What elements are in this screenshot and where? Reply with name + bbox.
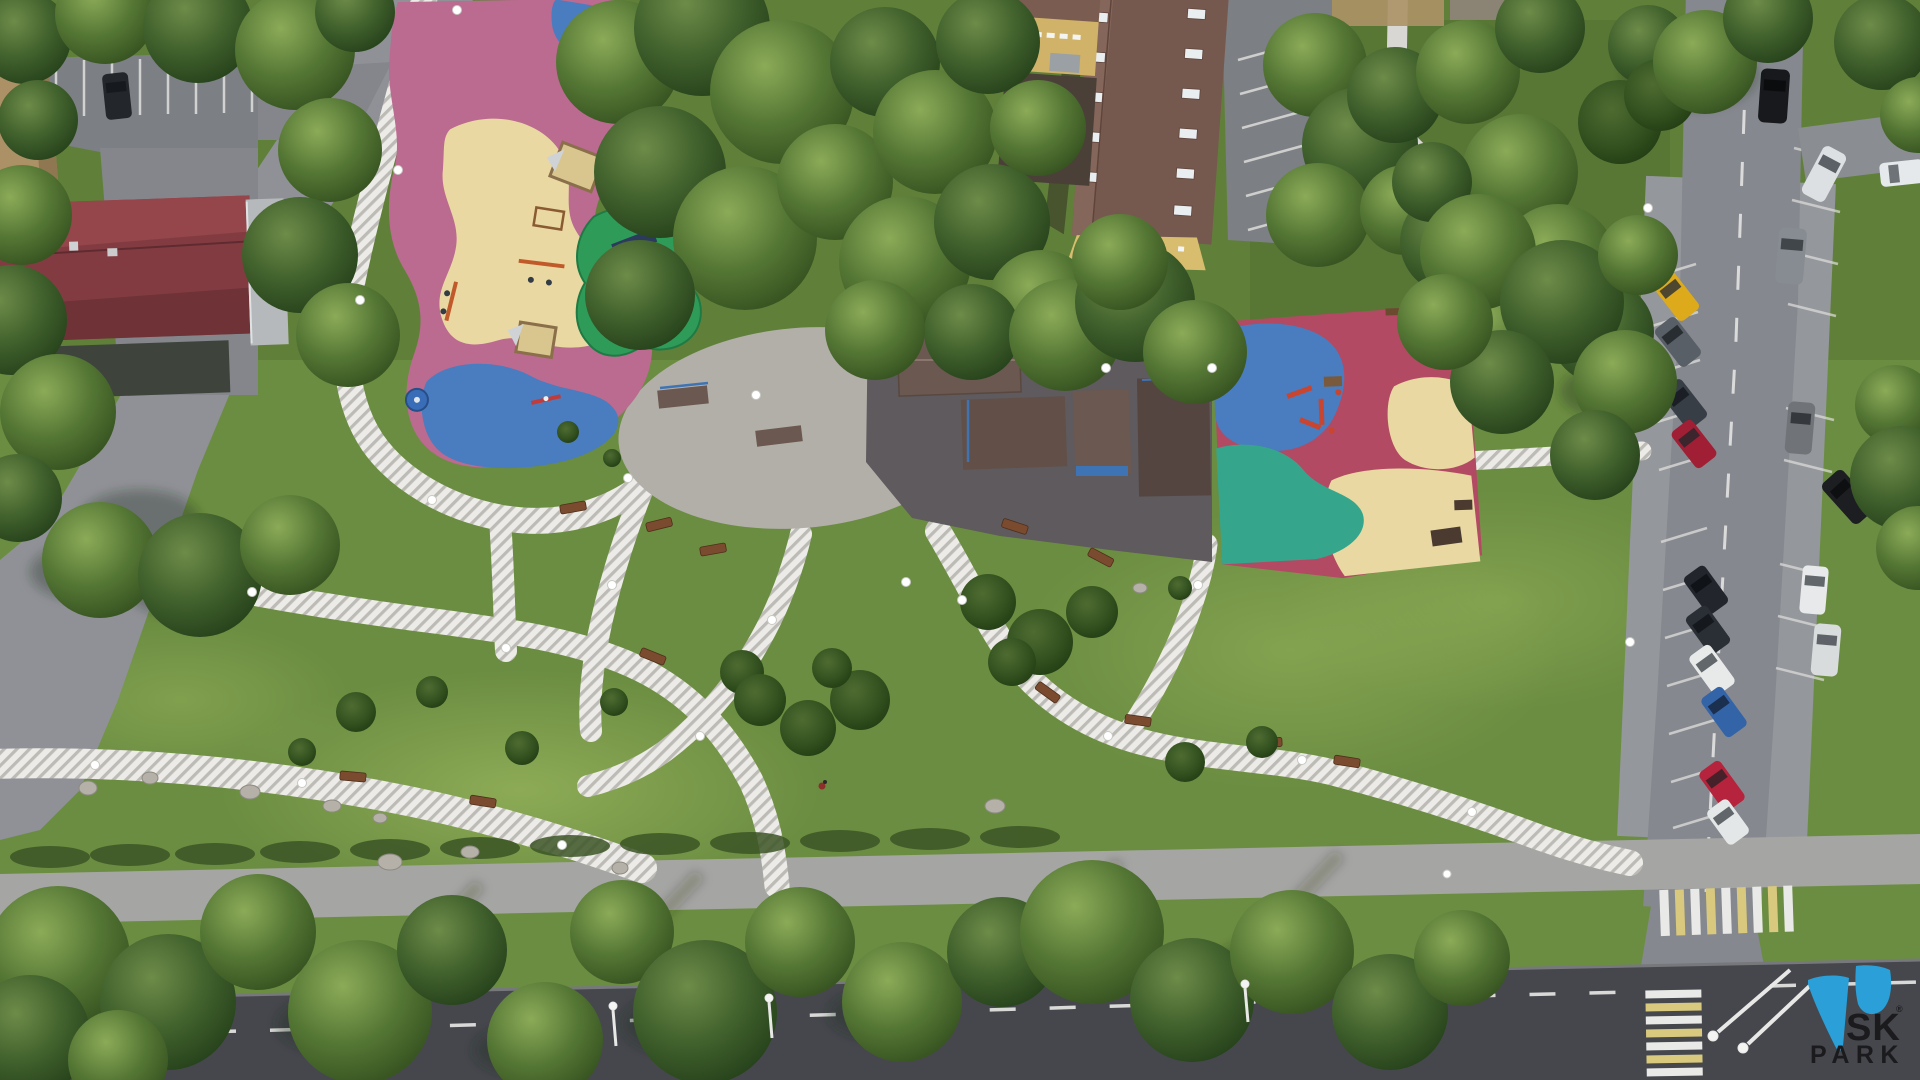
- tree-canopy: [924, 284, 1020, 380]
- car: [1810, 623, 1841, 677]
- lamp-globe: [394, 166, 403, 175]
- street-light-head: [1241, 980, 1249, 988]
- metal-canopy: [1049, 53, 1080, 73]
- bush: [288, 738, 316, 766]
- zebra-crossing-right-road: [1659, 885, 1794, 936]
- lamp-globe: [453, 6, 462, 15]
- bush: [1246, 726, 1278, 758]
- tree-canopy: [825, 280, 925, 380]
- lamp-globe: [91, 761, 100, 770]
- bush: [780, 700, 836, 756]
- lamp-globe: [696, 732, 705, 741]
- bench: [340, 771, 367, 782]
- spinner-carousel: [406, 389, 428, 411]
- bush: [734, 674, 786, 726]
- lamp-globe: [624, 474, 633, 483]
- bush: [600, 688, 628, 716]
- bush: [336, 692, 376, 732]
- aerial-park-photo: SK ® PARK: [0, 0, 1920, 1080]
- lamp-globe: [608, 581, 617, 590]
- lamp-globe: [902, 578, 911, 587]
- lamp-globe: [752, 391, 761, 400]
- watermark-logo: SK ® PARK: [1808, 965, 1905, 1069]
- lamp-globe: [356, 296, 365, 305]
- lamp-globe: [958, 596, 967, 605]
- lamp-globe: [1626, 638, 1635, 647]
- car: [1758, 68, 1791, 124]
- tree-canopy: [1550, 410, 1640, 500]
- lamp-globe: [558, 841, 567, 850]
- bush: [557, 421, 579, 443]
- skate-ramp: [961, 396, 1067, 470]
- bush: [1168, 576, 1192, 600]
- bush: [603, 449, 621, 467]
- bush: [505, 731, 539, 765]
- car: [102, 72, 133, 120]
- street-light-head: [1738, 1043, 1748, 1053]
- lamp-globe: [1208, 364, 1217, 373]
- lamp-globe: [298, 779, 307, 788]
- car: [1775, 227, 1808, 285]
- bush: [416, 676, 448, 708]
- roof-sliver: [1332, 0, 1444, 26]
- picnic-table: [1454, 500, 1472, 511]
- car: [1879, 159, 1920, 187]
- lamp-globe: [1298, 756, 1307, 765]
- tree-canopy: [200, 874, 316, 990]
- tree-canopy: [0, 80, 78, 160]
- bush: [1165, 742, 1205, 782]
- tree-canopy: [397, 895, 507, 1005]
- lamp-globe: [1644, 204, 1653, 213]
- logo-text-registered: ®: [1896, 1004, 1903, 1014]
- skate-ramp: [1073, 389, 1132, 475]
- lamp-globe: [1104, 732, 1113, 741]
- tree-canopy: [990, 80, 1086, 176]
- tree-canopy: [0, 354, 116, 470]
- tree-canopy: [1414, 910, 1510, 1006]
- bush: [1066, 586, 1118, 638]
- lamp-globe: [768, 616, 777, 625]
- tree-canopy: [278, 98, 382, 202]
- tree-canopy: [1143, 300, 1247, 404]
- tree-canopy: [585, 240, 695, 350]
- lamp-globe: [502, 644, 511, 653]
- lamp-globe: [1443, 870, 1451, 878]
- bush: [812, 648, 852, 688]
- roof-vent: [69, 241, 78, 250]
- lamp-globe: [428, 496, 437, 505]
- street-light-head: [609, 1002, 617, 1010]
- bush: [960, 574, 1016, 630]
- tree-canopy: [842, 942, 962, 1062]
- tree-canopy: [1266, 163, 1370, 267]
- tree-canopy: [1397, 274, 1493, 370]
- tree-canopy: [745, 887, 855, 997]
- lamp-globe: [1194, 581, 1203, 590]
- lamp-globe: [1468, 808, 1477, 817]
- tree-canopy: [240, 495, 340, 595]
- street-light-head: [1708, 1031, 1718, 1041]
- skate-ramp-blue-base: [1076, 466, 1128, 476]
- bush: [988, 638, 1036, 686]
- street-light-head: [765, 994, 773, 1002]
- logo-text-park: PARK: [1810, 1041, 1905, 1069]
- tree-canopy: [1072, 214, 1168, 310]
- tree-canopy: [1598, 215, 1678, 295]
- roof-vent: [107, 248, 117, 256]
- car: [1799, 565, 1829, 615]
- car: [1784, 401, 1815, 455]
- lamp-globe: [1102, 364, 1111, 373]
- tree-canopy: [296, 283, 400, 387]
- lamp-globe: [248, 588, 257, 597]
